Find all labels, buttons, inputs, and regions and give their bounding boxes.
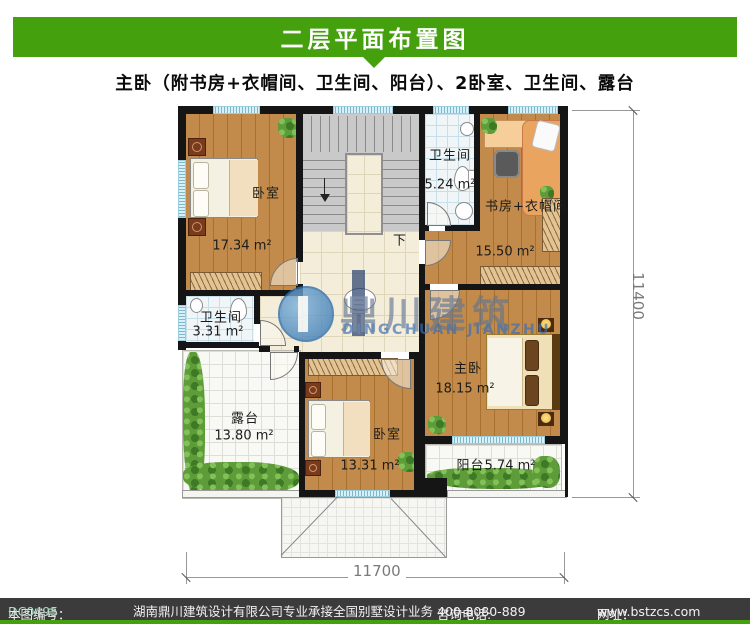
room-area-label: 13.80 m²	[214, 429, 273, 444]
wardrobe-icon	[480, 266, 562, 286]
plant-border-icon	[533, 456, 560, 488]
room-area-label: 15.50 m²	[475, 245, 534, 260]
room-label: 露台	[231, 408, 259, 427]
wall	[425, 478, 447, 497]
wall	[299, 352, 381, 359]
nightstand-icon	[188, 138, 206, 156]
room-area-label: 3.31 m²	[193, 325, 244, 340]
stairs-arrowhead-icon	[320, 194, 330, 202]
plant-icon	[278, 118, 298, 138]
banner-pointer-icon	[363, 57, 385, 68]
wall	[414, 352, 425, 497]
bed-icon	[486, 334, 554, 410]
floor-plan: 卧室 17.34 m² 卫生间 5.24 m² 书房+衣帽间 15.50 m² …	[178, 106, 568, 497]
footer-bar: 本图编号：DC0495 湖南鼎川建筑设计有限公司专业承接全国别墅设计业务 咨询电…	[0, 598, 750, 620]
footer-serial-number: DC0495	[8, 604, 58, 619]
dimension-bottom-label: 11700	[348, 562, 406, 580]
room-label: 卫生间	[429, 145, 471, 164]
window	[452, 436, 545, 444]
sink-icon	[455, 202, 473, 220]
page: { "header": { "title": "二层平面布置图", "subti…	[0, 0, 750, 624]
wall	[458, 284, 560, 290]
window	[213, 106, 260, 114]
plant-icon	[481, 118, 497, 134]
window	[178, 160, 186, 218]
footer-green-strip	[0, 620, 750, 624]
room-area-label: 5.74 m²	[485, 459, 536, 474]
room-label: 卧室	[373, 424, 401, 443]
wall	[299, 352, 305, 497]
bed-icon	[308, 400, 370, 458]
plant-icon	[428, 416, 446, 434]
room-label-balcony: 阳台	[457, 459, 485, 474]
room-label: 阳台5.74 m²	[457, 455, 536, 474]
title-banner: 二层平面布置图	[13, 17, 737, 57]
wall	[409, 352, 421, 359]
room-area-label: 17.34 m²	[212, 239, 271, 254]
page-title: 二层平面布置图	[281, 20, 470, 54]
wall	[425, 436, 452, 444]
wall	[299, 490, 335, 497]
room-area-label: 18.15 m²	[435, 382, 494, 397]
office-chair-icon	[494, 150, 520, 178]
stairs-down-label: 下	[393, 230, 407, 249]
window	[433, 106, 469, 114]
stairs-treads-top	[303, 116, 419, 152]
room-label: 卧室	[252, 183, 280, 202]
lamp-glow-icon	[541, 319, 551, 329]
wall	[419, 290, 425, 359]
room-area-label: 13.31 m²	[340, 459, 399, 474]
stairs-treads-right	[377, 152, 419, 231]
nightstand-icon	[305, 382, 321, 398]
wall	[186, 290, 303, 296]
room-label: 卫生间	[200, 307, 242, 326]
nightstand-icon	[188, 218, 206, 236]
room-label: 主卧	[454, 358, 482, 377]
dimension-right-label: 11400	[629, 261, 647, 331]
wall	[565, 444, 568, 497]
wall	[545, 436, 560, 444]
window	[178, 305, 186, 341]
footer-company-text: 湖南鼎川建筑设计有限公司专业承接全国别墅设计业务	[133, 601, 433, 620]
balcony-railing	[447, 490, 567, 498]
wardrobe-icon	[190, 272, 262, 292]
wall	[259, 346, 270, 352]
wall	[296, 114, 303, 262]
stair-void	[345, 153, 383, 235]
wall	[254, 290, 260, 324]
wall	[560, 106, 568, 444]
wall	[186, 342, 259, 348]
wall	[390, 490, 421, 497]
window	[335, 490, 390, 497]
headboard-icon	[552, 334, 560, 410]
lamp-glow-icon	[541, 413, 551, 423]
dimension-extension-line	[572, 497, 640, 498]
nightstand-icon	[305, 460, 321, 476]
room-label: 书房+衣帽间	[485, 196, 567, 215]
washbasin-icon	[344, 288, 376, 311]
window	[333, 106, 393, 114]
bed-icon	[190, 158, 258, 218]
room-area-label: 5.24 m²	[425, 178, 476, 193]
window	[508, 106, 558, 114]
wall	[474, 114, 480, 225]
shower-icon	[460, 122, 474, 136]
dimension-extension-line	[572, 110, 640, 111]
page-subtitle: 主卧（附书房+衣帽间、卫生间、阳台）、2卧室、卫生间、露台	[0, 70, 750, 95]
